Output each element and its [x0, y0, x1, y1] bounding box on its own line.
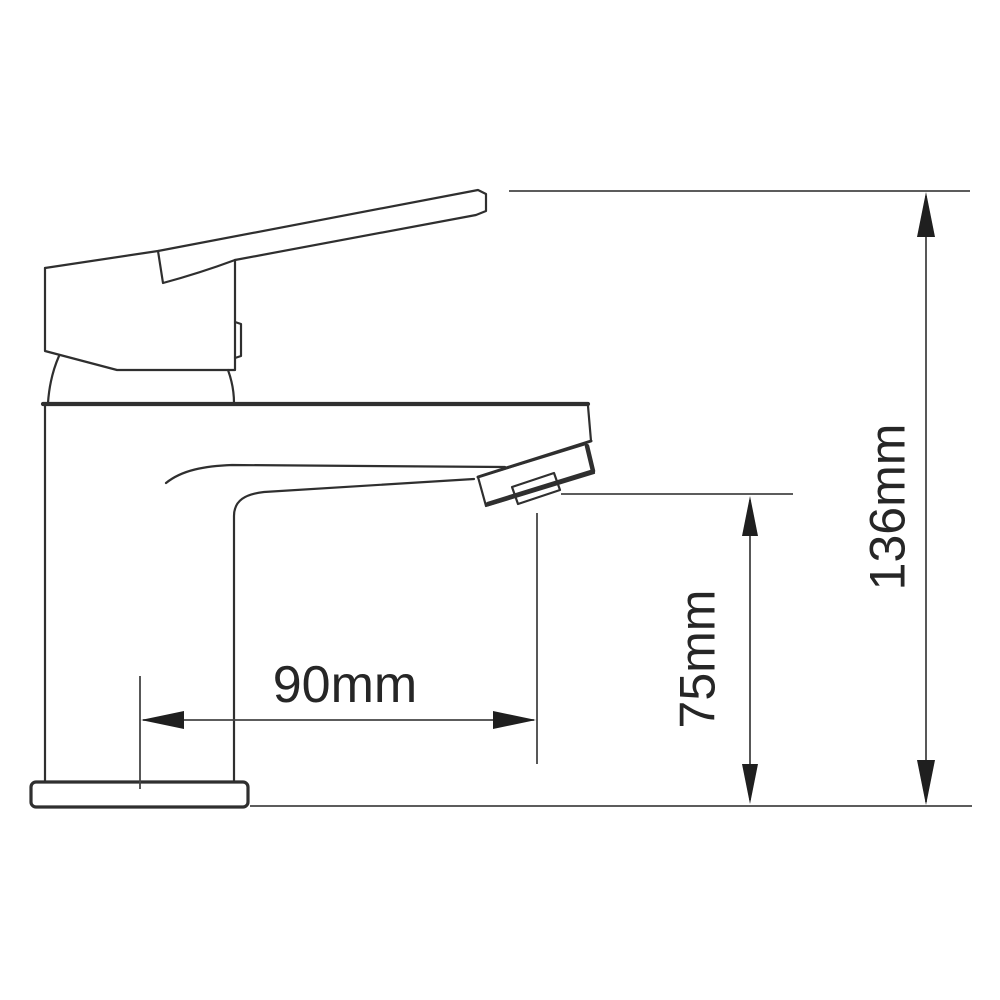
lever-handle [45, 190, 486, 268]
spout-height-dimension-label: 75mm [670, 590, 726, 729]
tap-dimension-diagram: 90mm 75mm 136mm [0, 0, 1000, 1000]
arrow-width-right [493, 711, 536, 729]
arrow-spout-height-up [742, 496, 758, 536]
lever-notch-curve [158, 251, 235, 283]
neck-arc-left [48, 356, 59, 403]
width-dimension-label: 90mm [273, 656, 417, 714]
arrow-overall-height-down [917, 760, 935, 805]
handle-base [45, 260, 235, 370]
dimension-arrows [141, 192, 935, 805]
drawing-canvas: 90mm 75mm 136mm [0, 0, 1000, 1000]
neck-arc-right [228, 370, 234, 403]
faucet-drawing [31, 190, 594, 807]
dimension-annotations [140, 191, 972, 806]
arrow-width-left [141, 711, 184, 729]
spout-underside-lower [234, 479, 474, 781]
overall-height-dimension-label: 136mm [860, 424, 916, 591]
arrow-spout-height-down [742, 764, 758, 804]
arrow-overall-height-up [917, 192, 935, 237]
nozzle-hatch-right [587, 446, 593, 471]
spout-right-edge [588, 406, 591, 441]
